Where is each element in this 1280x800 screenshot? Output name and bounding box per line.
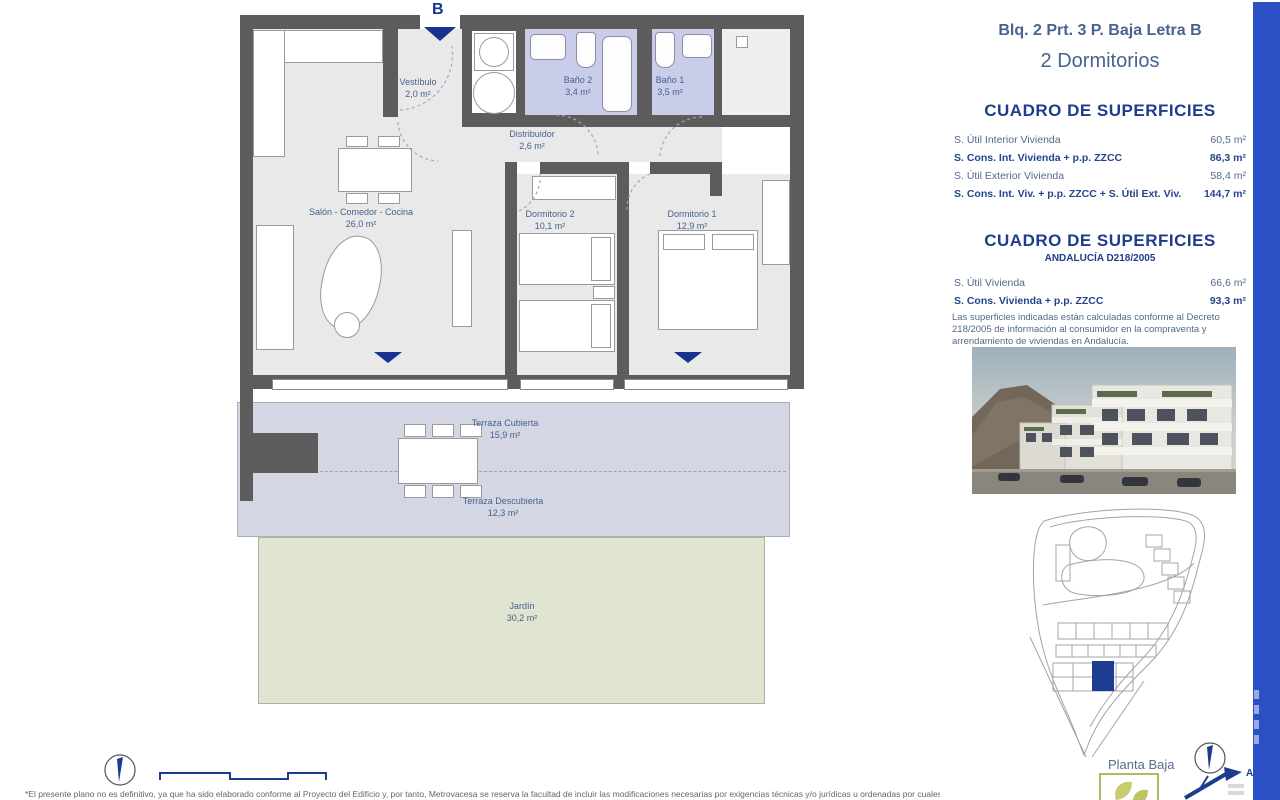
table-row: S. Cons. Int. Viv. + p.p. ZZCC + S. Útil… bbox=[952, 185, 1248, 203]
room-label-terraza-cubierta: Terraza Cubierta15,9 m² bbox=[453, 417, 557, 441]
unit-subtitle: 2 Dormitorios bbox=[952, 50, 1248, 73]
info-panel: Blq. 2 Prt. 3 P. Baja Letra B 2 Dormitor… bbox=[952, 22, 1248, 348]
bar-mark bbox=[1254, 690, 1259, 699]
table-row: S. Útil Exterior Vivienda58,4 m² bbox=[952, 167, 1248, 185]
highlighted-unit bbox=[1092, 661, 1114, 691]
room-label-bano2: Baño 23,4 m² bbox=[538, 74, 618, 98]
room-label-bano1: Baño 13,5 m² bbox=[638, 74, 702, 98]
surfaces-table-title: CUADRO DE SUPERFICIES bbox=[952, 101, 1248, 121]
plan-sheet: B bbox=[0, 0, 1280, 800]
bar-mark bbox=[1254, 705, 1259, 714]
legal-disclaimer: *El presente plano no es definitivo, ya … bbox=[25, 789, 940, 799]
pond-outline bbox=[1070, 527, 1107, 561]
room-label-vestibulo: Vestíbulo2,0 m² bbox=[378, 76, 458, 100]
window-arrow-icon bbox=[674, 352, 702, 363]
table-row: S. Cons. Int. Vivienda + p.p. ZZCC86,3 m… bbox=[952, 149, 1248, 167]
table-row: S. Cons. Vivienda + p.p. ZZCC93,3 m² bbox=[952, 292, 1248, 310]
room-label-terraza-descubierta: Terraza Descubierta12,3 m² bbox=[448, 495, 558, 519]
table-row: S. Útil Vivienda66,6 m² bbox=[952, 274, 1248, 292]
room-label-jardin: Jardín30,2 m² bbox=[472, 600, 572, 624]
floor-caption: Planta Baja bbox=[1108, 757, 1175, 772]
compass-and-scale bbox=[100, 752, 330, 792]
eco-leaf-logo bbox=[1098, 772, 1160, 800]
room-label-dormitorio2: Dormitorio 210,1 m² bbox=[495, 208, 605, 232]
table-row: S. Útil Interior Vivienda60,5 m² bbox=[952, 131, 1248, 149]
compass-needle-icon bbox=[117, 757, 123, 782]
room-label-dormitorio1: Dormitorio 112,9 m² bbox=[637, 208, 747, 232]
building-render-image bbox=[972, 347, 1236, 494]
room-label-distribuidor: Distribuidor2,6 m² bbox=[492, 128, 572, 152]
site-plan bbox=[1028, 505, 1246, 760]
bar-mark bbox=[1254, 720, 1259, 729]
surfaces-table2-subtitle: ANDALUCÍA D218/2005 bbox=[952, 253, 1248, 264]
window-arrow-icon bbox=[374, 352, 402, 363]
unit-title: Blq. 2 Prt. 3 P. Baja Letra B bbox=[952, 22, 1248, 40]
surfaces-table2: S. Útil Vivienda66,6 m² S. Cons. Viviend… bbox=[952, 274, 1248, 348]
brand-color-bar bbox=[1253, 2, 1280, 800]
surfaces-table2-title: CUADRO DE SUPERFICIES bbox=[952, 231, 1248, 251]
scale-bar bbox=[160, 773, 326, 780]
room-label-salon: Salón - Comedor - Cocina26,0 m² bbox=[271, 206, 451, 230]
decree-note: Las superficies indicadas están calculad… bbox=[952, 312, 1248, 348]
surfaces-table: S. Útil Interior Vivienda60,5 m² S. Cons… bbox=[952, 131, 1248, 203]
bar-mark bbox=[1254, 735, 1259, 744]
section-arrow: A bbox=[1180, 762, 1260, 800]
